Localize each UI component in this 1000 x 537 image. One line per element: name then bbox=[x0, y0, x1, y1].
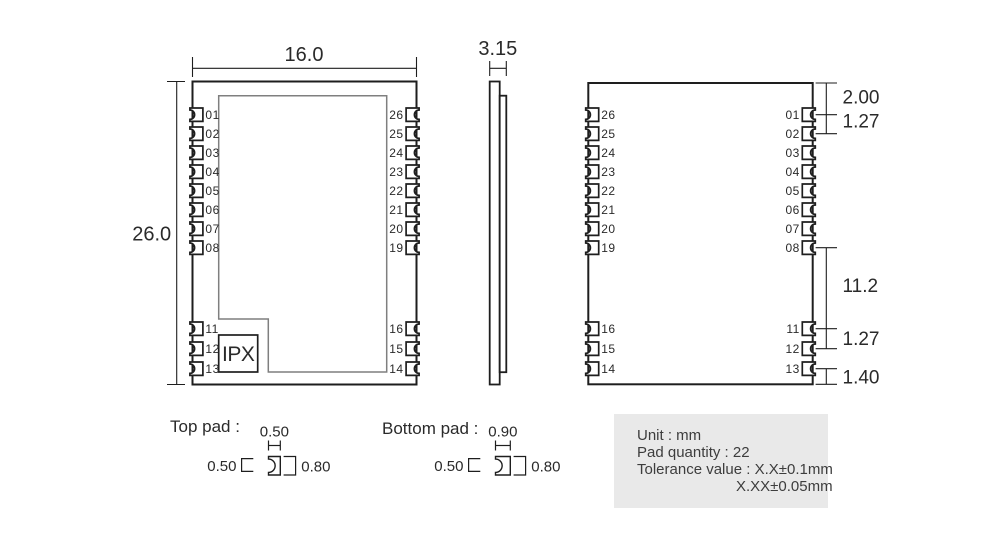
top-view-pin-number-label: 11 bbox=[205, 322, 218, 336]
bottom-pad-label: Bottom pad : bbox=[382, 419, 478, 439]
bottom-view-pin-number-label: 12 bbox=[785, 342, 799, 356]
top-view-pin-number-label: 07 bbox=[205, 222, 219, 236]
pad-notch-bracket bbox=[242, 459, 254, 472]
bottom-view-pin-number-label: 23 bbox=[601, 165, 615, 179]
pad-length-bracket bbox=[514, 457, 526, 476]
bottom-view-pin-number-label: 25 bbox=[601, 127, 615, 141]
info-pad-quantity-line: Pad quantity : 22 bbox=[637, 444, 828, 461]
pad-detail-shape bbox=[269, 457, 281, 476]
top-view-pin-number-label: 22 bbox=[389, 184, 403, 198]
bottom-view-pin-number-label: 06 bbox=[785, 203, 799, 217]
pad-detail-shape bbox=[496, 457, 511, 476]
top-view-pin-number-label: 15 bbox=[389, 342, 403, 356]
top-view-pin-number-label: 02 bbox=[205, 127, 219, 141]
bottom-view-pin-number-label: 19 bbox=[601, 241, 615, 255]
pad-notch-label: 0.50 bbox=[207, 458, 236, 475]
info-tolerance-line: Tolerance value : X.X±0.1mm bbox=[637, 461, 828, 478]
info-box: Unit : mm Pad quantity : 22 Tolerance va… bbox=[614, 414, 828, 508]
pad-length-label: 0.80 bbox=[301, 459, 330, 476]
bottom-view-pin-number-label: 24 bbox=[601, 146, 615, 160]
module-outline-bottom-view bbox=[588, 83, 812, 384]
bottom-view-pin-number-label: 11 bbox=[786, 322, 799, 336]
top-view-pin-number-label: 19 bbox=[389, 241, 403, 255]
bottom-view-pin-number-label: 15 bbox=[601, 342, 615, 356]
top-view-pin-number-label: 14 bbox=[389, 362, 403, 376]
top-view-pin-number-label: 04 bbox=[205, 165, 219, 179]
pitch-dim-label: 1.40 bbox=[843, 368, 880, 389]
bottom-view-pin-number-label: 26 bbox=[601, 108, 615, 122]
bottom-view-pin-number-label: 04 bbox=[785, 165, 799, 179]
bottom-view-pin-number-label: 08 bbox=[785, 241, 799, 255]
technical-drawing-canvas: IPX0102030405060708111213262524232221201… bbox=[0, 0, 1000, 537]
top-view-pin-number-label: 13 bbox=[205, 362, 219, 376]
info-tolerance-line-2: X.XX±0.05mm bbox=[736, 478, 828, 495]
pitch-dim-label: 1.27 bbox=[843, 329, 880, 350]
pad-length-label: 0.80 bbox=[531, 459, 560, 476]
bottom-view-pin-number-label: 14 bbox=[601, 362, 615, 376]
module-dimension-drawing: IPX0102030405060708111213262524232221201… bbox=[0, 0, 1000, 537]
dim-height-label: 26.0 bbox=[132, 224, 171, 246]
bottom-view-pin-number-label: 07 bbox=[785, 222, 799, 236]
pad-width-label: 0.50 bbox=[260, 424, 289, 441]
top-view-pin-number-label: 16 bbox=[389, 322, 403, 336]
top-view-pin-number-label: 24 bbox=[389, 146, 403, 160]
pad-notch-bracket bbox=[469, 459, 481, 472]
top-pad-label: Top pad : bbox=[170, 417, 240, 437]
bottom-view-pin-number-label: 22 bbox=[601, 184, 615, 198]
bottom-view-pin-number-label: 05 bbox=[785, 184, 799, 198]
pad-width-label: 0.90 bbox=[488, 424, 517, 441]
ipx-label: IPX bbox=[222, 343, 255, 366]
pitch-dim-label: 11.2 bbox=[843, 276, 879, 297]
top-view-pin-number-label: 20 bbox=[389, 222, 403, 236]
top-view-pin-number-label: 06 bbox=[205, 203, 219, 217]
top-view-pin-number-label: 03 bbox=[205, 146, 219, 160]
bottom-view-pin-number-label: 01 bbox=[785, 108, 799, 122]
pad-notch-label: 0.50 bbox=[434, 458, 463, 475]
top-view-pin-number-label: 26 bbox=[389, 108, 403, 122]
bottom-view-pin-number-label: 16 bbox=[601, 322, 615, 336]
pitch-dim-label: 1.27 bbox=[843, 112, 880, 133]
info-unit-line: Unit : mm bbox=[637, 427, 828, 444]
bottom-view-pin-number-label: 13 bbox=[785, 362, 799, 376]
top-view-pin-number-label: 25 bbox=[389, 127, 403, 141]
top-view-pin-number-label: 08 bbox=[205, 241, 219, 255]
shield-side-profile bbox=[500, 96, 507, 373]
top-view-pin-number-label: 01 bbox=[205, 108, 219, 122]
pitch-dim-label: 2.00 bbox=[843, 88, 880, 109]
bottom-view-pin-number-label: 02 bbox=[785, 127, 799, 141]
bottom-view-pin-number-label: 03 bbox=[785, 146, 799, 160]
top-view-pin-number-label: 05 bbox=[205, 184, 219, 198]
dim-width-label: 16.0 bbox=[285, 44, 324, 66]
bottom-view-pin-number-label: 20 bbox=[601, 222, 615, 236]
top-view-pin-number-label: 23 bbox=[389, 165, 403, 179]
pad-length-bracket bbox=[284, 457, 296, 476]
top-view-pin-number-label: 12 bbox=[205, 342, 219, 356]
bottom-view-pin-number-label: 21 bbox=[601, 203, 615, 217]
dim-thickness-label: 3.15 bbox=[478, 38, 517, 60]
pcb-side-profile bbox=[490, 82, 500, 385]
top-view-pin-number-label: 21 bbox=[389, 203, 403, 217]
